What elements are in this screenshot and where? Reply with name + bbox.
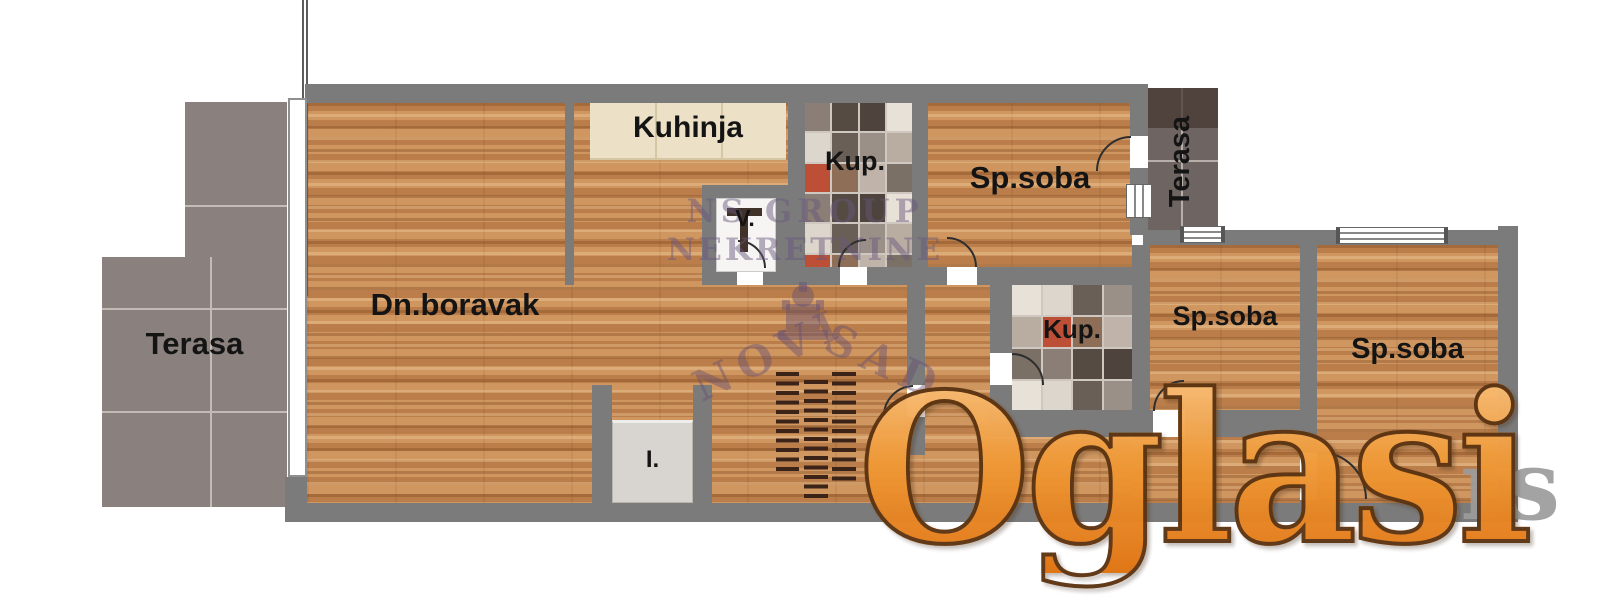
- label-terrace-left: Terasa: [102, 328, 287, 361]
- stairs-hatch-col3: [832, 372, 856, 484]
- label-living: Dn.boravak: [330, 289, 580, 322]
- watermark-agency-line2: NEKRETNINE: [650, 232, 960, 268]
- wall-top: [305, 84, 1148, 103]
- label-bedroom1: Sp.soba: [930, 162, 1130, 195]
- label-terrace-right-text: Terasa: [1165, 116, 1198, 207]
- label-bath1: Kup.: [795, 147, 915, 175]
- mosaic-tile: [887, 103, 912, 131]
- wall-left-bottom-stub: [285, 477, 307, 507]
- mosaic-tile: [1043, 285, 1072, 315]
- label-terrace-right: Terasa: [1146, 90, 1216, 233]
- mosaic-tile: [832, 103, 857, 131]
- label-vestibule: V.: [716, 206, 774, 230]
- terrace-left-upper: [185, 102, 287, 257]
- label-kitchen: Kuhinja: [590, 112, 786, 144]
- watermark-agency-line1: NS GROUP: [660, 192, 950, 230]
- mosaic-tile: [1104, 285, 1133, 315]
- label-bedroom2: Sp.soba: [1150, 302, 1300, 330]
- door-gap-bath1: [840, 267, 867, 285]
- mosaic-tile: [1012, 285, 1041, 315]
- floorplan: Terasa Dn.boravak Kuhinja Kup. Sp.soba T…: [0, 0, 1600, 606]
- terrace-door-left: [288, 98, 307, 477]
- stairs-hatch-col1: [776, 372, 799, 472]
- wall-kitchen-divider: [565, 103, 574, 285]
- wall-storage-left: [592, 385, 612, 503]
- stairs-hatch-col2: [804, 380, 828, 502]
- mosaic-tile: [805, 103, 830, 131]
- mosaic-tile: [860, 103, 885, 131]
- door-gap-bedroom1: [947, 267, 977, 285]
- window-bedroom3: [1336, 227, 1448, 244]
- mosaic-tile: [1073, 285, 1102, 315]
- label-storage: I.: [612, 447, 693, 472]
- terrace-left-lower: [102, 257, 287, 507]
- watermark-brand: Oglasi: [858, 368, 1527, 573]
- label-bath2: Kup.: [1012, 316, 1132, 343]
